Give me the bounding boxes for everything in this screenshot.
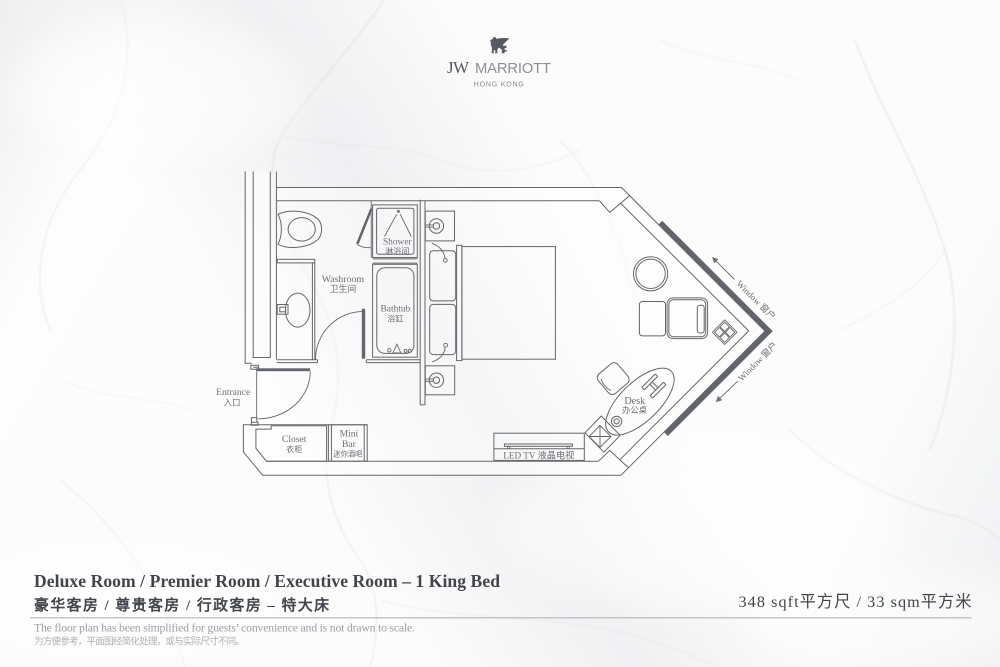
- svg-text:Bar: Bar: [342, 439, 357, 450]
- svg-text:348 sqft平方尺 / 33 sqm平方米: 348 sqft平方尺 / 33 sqm平方米: [739, 593, 972, 611]
- svg-text:MARRIOTT: MARRIOTT: [475, 61, 551, 77]
- svg-text:Closet: Closet: [282, 434, 307, 445]
- svg-text:Shower: Shower: [383, 237, 413, 247]
- svg-text:HONG KONG: HONG KONG: [474, 82, 527, 89]
- svg-text:为方便参考，平面图经简化处理，或与实际尺寸不同。: 为方便参考，平面图经简化处理，或与实际尺寸不同。: [34, 636, 245, 648]
- svg-text:衣柜: 衣柜: [286, 444, 302, 454]
- svg-text:LED TV 液晶电视: LED TV 液晶电视: [503, 449, 574, 460]
- svg-text:入口: 入口: [223, 398, 240, 408]
- svg-text:Bathtub: Bathtub: [381, 304, 411, 314]
- svg-text:办公桌: 办公桌: [622, 405, 648, 415]
- svg-text:卫生间: 卫生间: [330, 283, 357, 294]
- svg-text:The floor plan has been simpli: The floor plan has been simplified for g…: [34, 621, 415, 635]
- svg-text:淋浴间: 淋浴间: [385, 246, 409, 256]
- svg-text:豪华客房 / 尊贵客房 / 行政客房 – 特大床: 豪华客房 / 尊贵客房 / 行政客房 – 特大床: [34, 596, 329, 614]
- svg-text:Deluxe Room / Premier Room / E: Deluxe Room / Premier Room / Executive R…: [34, 571, 500, 591]
- svg-text:迷你酒吧: 迷你酒吧: [333, 449, 363, 458]
- svg-text:JW: JW: [447, 58, 470, 77]
- svg-text:浴缸: 浴缸: [387, 314, 403, 324]
